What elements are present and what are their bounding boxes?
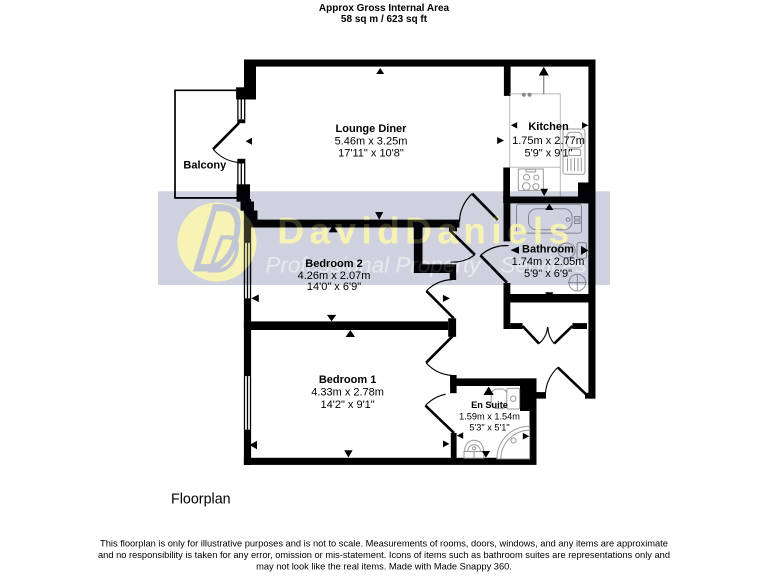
svg-text:may not look like the real ite: may not look like the real items. Made w… <box>256 562 512 572</box>
svg-text:En Suite: En Suite <box>471 400 508 410</box>
svg-text:1.75m x 2.77m: 1.75m x 2.77m <box>512 135 585 147</box>
svg-text:Bedroom 1: Bedroom 1 <box>319 374 376 386</box>
svg-text:Kitchen: Kitchen <box>528 121 569 133</box>
svg-text:Floorplan: Floorplan <box>171 492 231 508</box>
svg-text:Balcony: Balcony <box>183 159 227 171</box>
svg-text:14'2" x 9'1": 14'2" x 9'1" <box>320 399 374 411</box>
svg-text:1.59m x 1.54m: 1.59m x 1.54m <box>459 412 520 422</box>
svg-text:17'11" x 10'8": 17'11" x 10'8" <box>338 148 404 160</box>
svg-text:1.74m x 2.05m: 1.74m x 2.05m <box>512 256 585 268</box>
svg-text:and no responsibility is taken: and no responsibility is taken for any e… <box>98 550 670 560</box>
svg-text:Bathroom: Bathroom <box>522 244 574 256</box>
svg-text:5.46m x 3.25m: 5.46m x 3.25m <box>335 135 408 147</box>
svg-text:5'9" x 9'1": 5'9" x 9'1" <box>524 147 572 159</box>
svg-text:58 sq m / 623 sq ft: 58 sq m / 623 sq ft <box>341 14 428 25</box>
svg-text:5'9" x 6'9": 5'9" x 6'9" <box>524 268 572 280</box>
svg-text:Lounge Diner: Lounge Diner <box>336 123 408 135</box>
svg-text:4.33m x 2.78m: 4.33m x 2.78m <box>311 387 384 399</box>
svg-text:5'3" x 5'1": 5'3" x 5'1" <box>469 422 509 432</box>
svg-text:Bedroom 2: Bedroom 2 <box>305 258 362 270</box>
svg-text:Approx Gross Internal Area: Approx Gross Internal Area <box>319 3 450 14</box>
svg-text:14'0" x 6'9": 14'0" x 6'9" <box>307 281 361 293</box>
svg-text:This floorplan is only for ill: This floorplan is only for illustrative … <box>100 538 668 548</box>
